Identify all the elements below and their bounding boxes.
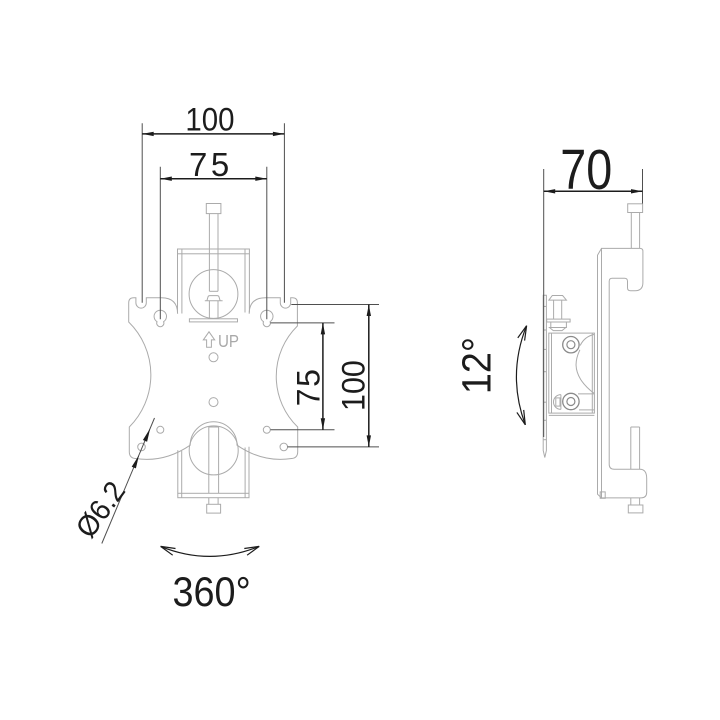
svg-text:12°: 12° [454, 337, 500, 394]
svg-text:75: 75 [290, 368, 326, 407]
svg-text:UP: UP [218, 332, 239, 351]
svg-text:100: 100 [336, 360, 372, 411]
svg-text:75: 75 [189, 146, 233, 183]
svg-text:360°: 360° [173, 569, 251, 615]
svg-text:100: 100 [185, 101, 234, 137]
svg-text:70: 70 [560, 138, 612, 201]
